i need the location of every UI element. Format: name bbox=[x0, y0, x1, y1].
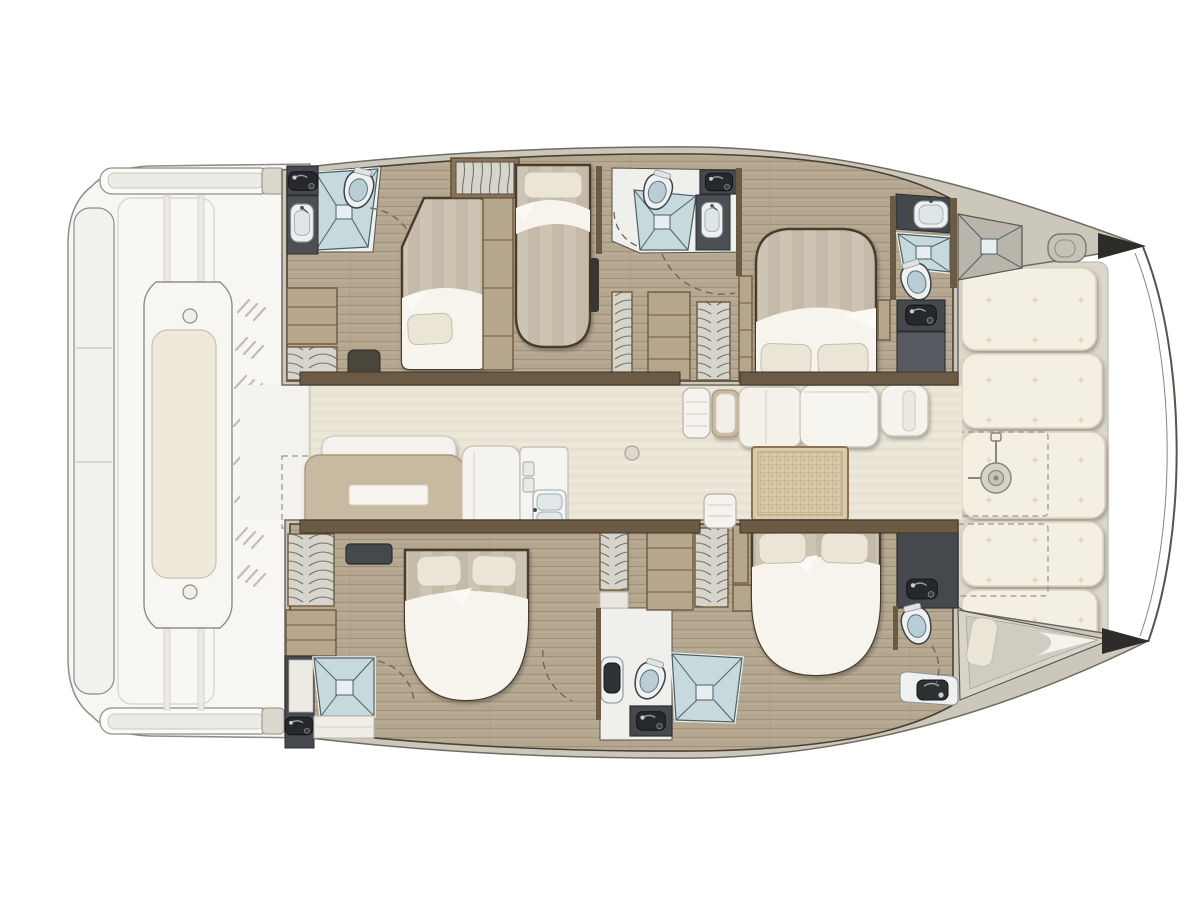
washbasin bbox=[291, 204, 314, 242]
galley-sink-basin-1 bbox=[537, 494, 562, 510]
double-bed bbox=[402, 198, 486, 369]
spring-locker bbox=[695, 528, 728, 607]
pillow bbox=[416, 555, 461, 587]
shelf-unit bbox=[647, 525, 693, 610]
sofa-table bbox=[349, 485, 428, 505]
hanging-locker bbox=[451, 158, 519, 198]
starboard-hull-steps bbox=[704, 494, 736, 528]
double-bed bbox=[756, 229, 876, 380]
catamaran-floor-plan bbox=[0, 0, 1200, 899]
aft-cockpit-floor bbox=[240, 385, 312, 520]
saloon-wall bbox=[740, 520, 958, 533]
double-bed bbox=[405, 550, 528, 700]
swim-step-bottom-inner bbox=[108, 714, 264, 729]
spring-locker bbox=[600, 532, 628, 590]
divider bbox=[733, 525, 748, 583]
saloon-wall bbox=[300, 372, 680, 385]
pillow bbox=[758, 532, 806, 564]
swim-step-top-inner bbox=[108, 173, 264, 188]
shelf-unit bbox=[287, 288, 337, 344]
bench-latch-bottom bbox=[183, 585, 197, 599]
port-hull-steps bbox=[683, 388, 710, 438]
spring-locker bbox=[612, 292, 632, 380]
divider-shelves bbox=[483, 198, 513, 370]
saloon bbox=[240, 385, 962, 533]
saloon-wall bbox=[300, 520, 700, 533]
pillow bbox=[524, 172, 582, 198]
saloon-sofa-group bbox=[305, 436, 520, 533]
rattan-table bbox=[752, 447, 848, 520]
hull-step-port-aft bbox=[262, 168, 284, 194]
bench-latch-top bbox=[183, 309, 197, 323]
cabinet bbox=[346, 544, 392, 564]
pillow bbox=[820, 532, 868, 564]
settee bbox=[462, 446, 520, 532]
pillow bbox=[407, 313, 453, 345]
vanity-basin bbox=[285, 717, 312, 735]
side-platform bbox=[74, 208, 114, 694]
pillow bbox=[471, 555, 516, 587]
bedside-shelf bbox=[878, 300, 890, 340]
vanity-basin bbox=[906, 305, 937, 325]
port-single-cabin bbox=[516, 165, 599, 347]
floor-plan-page bbox=[0, 0, 1200, 899]
anchor-pod bbox=[1048, 234, 1086, 262]
mast-post bbox=[625, 446, 639, 460]
stove-burner-1 bbox=[523, 462, 534, 476]
hull-step-starboard-aft bbox=[262, 708, 284, 734]
vanity-basin bbox=[637, 712, 666, 731]
shelf-unit bbox=[648, 292, 690, 380]
door-jamb bbox=[589, 258, 599, 312]
shelf-unit bbox=[286, 610, 336, 656]
wardrobe-handle bbox=[907, 579, 938, 599]
washbasin bbox=[701, 202, 722, 237]
spring-locker bbox=[697, 302, 730, 380]
cockpit-bench bbox=[144, 282, 232, 628]
spring-locker bbox=[288, 534, 334, 606]
entry-steps bbox=[739, 276, 752, 382]
dinette-bench-1 bbox=[739, 387, 801, 447]
double-bed bbox=[752, 528, 880, 675]
saloon-wall bbox=[740, 372, 958, 385]
vanity-basin bbox=[705, 173, 732, 191]
bench-cushion bbox=[152, 330, 216, 578]
single-bed bbox=[516, 165, 590, 347]
dinette-bench-2 bbox=[800, 385, 878, 447]
port-forward-cabin bbox=[739, 229, 890, 382]
stove-burner-2 bbox=[523, 478, 534, 492]
vanity-basin bbox=[289, 172, 318, 191]
dinette-chair-pad bbox=[716, 394, 735, 433]
